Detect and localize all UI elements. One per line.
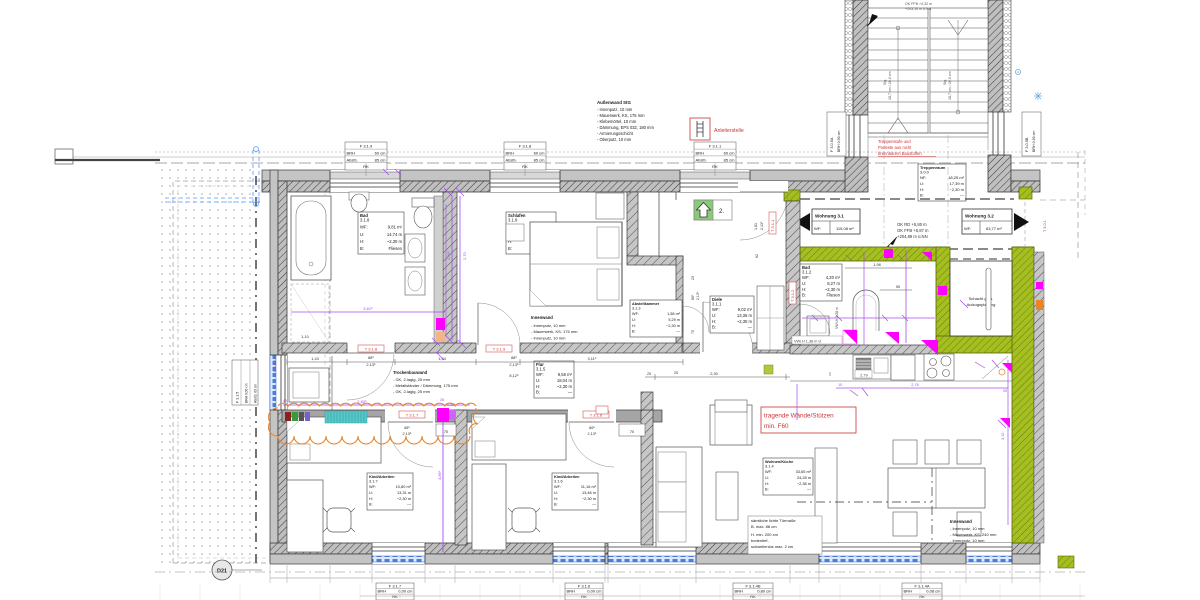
svg-text:4,20 m²: 4,20 m²: [826, 275, 841, 280]
svg-text:schwellenlos max. 2 cm: schwellenlos max. 2 cm: [751, 544, 794, 549]
svg-text:2,79: 2,79: [860, 374, 867, 378]
svg-text:~2,30 m: ~2,30 m: [825, 287, 841, 292]
svg-text:BRH 0,00 cm: BRH 0,00 cm: [245, 383, 249, 403]
svg-text:BRH: BRH: [347, 151, 356, 156]
svg-text:3.0.0: 3.0.0: [920, 169, 930, 174]
svg-text:WF:: WF:: [369, 484, 376, 489]
svg-text:BRH: BRH: [696, 151, 705, 156]
svg-text:2,13⁵: 2,13⁵: [403, 432, 412, 436]
svg-text:T 3.0.1: T 3.0.1: [1043, 220, 1047, 232]
svg-text:25: 25: [647, 372, 651, 376]
svg-text:60 cm: 60 cm: [724, 151, 736, 156]
svg-text:H:: H:: [536, 384, 540, 389]
svg-text:H:: H:: [369, 496, 373, 501]
svg-text:B:: B:: [920, 193, 924, 198]
svg-text:T 3.1.2: T 3.1.2: [790, 289, 795, 302]
svg-text:18,25 m²: 18,25 m²: [948, 175, 964, 180]
svg-text:23: 23: [691, 276, 695, 280]
svg-text:Innenwand: Innenwand: [950, 519, 972, 524]
svg-text:63,77 m²: 63,77 m²: [986, 226, 1002, 231]
svg-text:U:: U:: [632, 318, 636, 322]
svg-text:9,02 m²: 9,02 m²: [738, 307, 753, 312]
svg-text:25: 25: [674, 371, 678, 375]
svg-text:Podeste aus nicht: Podeste aus nicht: [878, 145, 912, 150]
svg-text:Abstellkammer: Abstellkammer: [632, 302, 660, 306]
svg-text:B:: B:: [360, 246, 364, 251]
svg-text:2,13⁵: 2,13⁵: [509, 362, 519, 367]
svg-text:min. F60: min. F60: [764, 423, 789, 430]
svg-text:WF:: WF:: [814, 226, 821, 231]
svg-text:8,12⁵: 8,12⁵: [509, 373, 519, 378]
svg-text:Abstb. 85 cm: Abstb. 85 cm: [254, 384, 258, 403]
svg-text:brennbarem Baustoffen: brennbarem Baustoffen: [878, 151, 922, 156]
svg-text:33,65 m²: 33,65 m²: [796, 469, 812, 474]
svg-text:BRH 0,93 cm: BRH 0,93 cm: [837, 131, 841, 152]
svg-text:8,27 m: 8,27 m: [827, 281, 840, 286]
svg-text:95: 95: [1003, 389, 1007, 393]
svg-text:3.1.3: 3.1.3: [632, 306, 640, 310]
svg-text:- Oberputz, 10 mm: - Oberputz, 10 mm: [597, 137, 632, 142]
svg-text:T 3.1.8: T 3.1.8: [365, 347, 378, 352]
svg-text:OK RD +5,80 m: OK RD +5,80 m: [897, 222, 927, 227]
svg-text:NF:: NF:: [920, 175, 926, 180]
svg-text:Abstb.: Abstb.: [347, 157, 358, 162]
svg-text:2,13⁵: 2,13⁵: [366, 362, 376, 367]
svg-text:H:: H:: [360, 239, 364, 244]
svg-text:4,86⁵: 4,86⁵: [437, 470, 442, 480]
svg-text:60 cm: 60 cm: [375, 151, 387, 156]
svg-text:0,08 cm: 0,08 cm: [926, 589, 941, 594]
svg-text:BRH: BRH: [378, 589, 387, 594]
svg-text:WF:: WF:: [554, 484, 561, 489]
svg-text:T 3.1.7: T 3.1.7: [406, 413, 419, 418]
svg-text:3.1.7: 3.1.7: [369, 478, 378, 483]
svg-text:WF:: WF:: [536, 372, 544, 377]
svg-text:B:: B:: [802, 293, 806, 298]
svg-text:- Innenputz, 10 mm: - Innenputz, 10 mm: [950, 538, 985, 543]
svg-text:F 3.0.5A: F 3.0.5A: [830, 137, 834, 152]
svg-text:86⁵: 86⁵: [589, 426, 595, 430]
svg-text:3.1.4: 3.1.4: [765, 463, 774, 468]
svg-text:68⁵: 68⁵: [404, 426, 410, 430]
svg-text:62: 62: [755, 254, 759, 258]
svg-text:3.1.8: 3.1.8: [360, 217, 370, 222]
svg-text:- Mauerwerk, KS, 175 mm: - Mauerwerk, KS, 175 mm: [597, 113, 645, 118]
svg-text:BRH: BRH: [506, 151, 515, 156]
svg-text:BRH: BRH: [904, 589, 913, 594]
svg-text:Innenwand: Innenwand: [531, 315, 553, 320]
svg-text:B:: B:: [554, 502, 558, 507]
svg-text:Außenwand StG: Außenwand StG: [597, 100, 631, 105]
svg-text:WF:: WF:: [712, 307, 720, 312]
svg-text:- Innenputz, 10 mm: - Innenputz, 10 mm: [531, 335, 566, 340]
svg-text:WF:: WF:: [765, 469, 772, 474]
svg-text:- Dämmung, EPS 032, 180 mm: - Dämmung, EPS 032, 180 mm: [597, 125, 654, 130]
svg-text:2,76: 2,76: [911, 383, 918, 387]
svg-text:+204,89 m ü.NN: +204,89 m ü.NN: [897, 234, 928, 239]
svg-text:- Armierungsschicht: - Armierungsschicht: [597, 131, 634, 136]
svg-text:sämtliche lichte Türmaße: sämtliche lichte Türmaße: [751, 518, 796, 523]
svg-text:U:: U:: [536, 378, 540, 383]
svg-text:H:: H:: [765, 481, 769, 486]
svg-text:3,11⁵: 3,11⁵: [588, 356, 597, 361]
svg-text:F 3.1.4B: F 3.1.4B: [745, 583, 760, 588]
svg-text:55: 55: [896, 285, 900, 289]
svg-text:~2,30 m: ~2,30 m: [949, 187, 964, 192]
svg-text:- GK, 2-lagig, 25 mm: - GK, 2-lagig, 25 mm: [393, 377, 431, 382]
svg-text:B:: B:: [369, 502, 373, 507]
svg-text:Trockenbauwand: Trockenbauwand: [393, 370, 428, 375]
svg-text:0,80 cm: 0,80 cm: [757, 589, 772, 594]
svg-text:3.1.6: 3.1.6: [554, 478, 563, 483]
svg-text:28: 28: [440, 398, 444, 402]
svg-text:18,04 m: 18,04 m: [557, 378, 573, 383]
svg-text:13,46 m: 13,46 m: [582, 490, 596, 495]
svg-text:BRH: BRH: [567, 589, 576, 594]
svg-text:15: 15: [838, 383, 842, 387]
svg-text:H:: H:: [632, 324, 636, 328]
svg-text:U:: U:: [369, 490, 373, 495]
svg-text:B:: B:: [765, 487, 769, 492]
svg-text:13,31 m: 13,31 m: [397, 490, 411, 495]
svg-text:~2,30 m: ~2,30 m: [582, 496, 596, 501]
svg-text:0,00 cm: 0,00 cm: [398, 589, 413, 594]
svg-text:~2,30 m: ~2,30 m: [666, 324, 680, 328]
svg-text:U:: U:: [360, 232, 364, 237]
svg-text:3.1.5: 3.1.5: [536, 366, 546, 371]
svg-text:70: 70: [630, 430, 634, 434]
svg-text:WF:: WF:: [802, 275, 810, 280]
svg-text:—: —: [676, 330, 680, 334]
svg-text:F 3.1.4A: F 3.1.4A: [914, 583, 929, 588]
svg-text:2,13⁵: 2,13⁵: [588, 432, 597, 436]
svg-text:OK FFB +5,87 m: OK FFB +5,87 m: [897, 228, 929, 233]
svg-text:B:: B:: [712, 325, 716, 330]
svg-text:H:: H:: [554, 496, 558, 501]
svg-text:H:: H:: [802, 287, 806, 292]
svg-text:Abstb.: Abstb.: [506, 157, 517, 162]
svg-text:- Innenputz, 10 mm: - Innenputz, 10 mm: [950, 526, 985, 531]
svg-text:3.1.9: 3.1.9: [508, 217, 518, 222]
svg-text:14,74 m: 14,74 m: [387, 232, 403, 237]
svg-text:1,10: 1,10: [301, 334, 309, 339]
svg-text:RK: RK: [392, 594, 398, 599]
svg-text:~2,30 m: ~2,30 m: [737, 319, 753, 324]
svg-text:2,46⁵: 2,46⁵: [446, 250, 451, 260]
svg-text:T 3.1.9: T 3.1.9: [493, 347, 506, 352]
svg-text:9,81 m²: 9,81 m²: [388, 225, 403, 230]
svg-text:3,61⁵: 3,61⁵: [363, 306, 373, 311]
svg-text:WF:: WF:: [964, 226, 971, 231]
svg-text:Wohnung 3.1: Wohnung 3.1: [815, 214, 844, 219]
svg-text:2.: 2.: [719, 209, 724, 215]
svg-text:- Mauerwerk, KS, 240 mm: - Mauerwerk, KS, 240 mm: [950, 532, 997, 537]
svg-text:U:: U:: [554, 490, 558, 495]
svg-text:F 3.0.5B: F 3.0.5B: [1025, 137, 1029, 152]
svg-text:OK FFB +4,32 m: OK FFB +4,32 m: [905, 2, 932, 6]
svg-text:U:: U:: [712, 313, 716, 318]
svg-text:B:: B:: [508, 246, 512, 251]
svg-text:H. min. 200 cm: H. min. 200 cm: [751, 532, 779, 537]
svg-text:75: 75: [691, 330, 695, 334]
svg-text:+203,10 m ü.NN: +203,10 m ü.NN: [905, 7, 932, 11]
svg-text:- Innenputz, 10 mm: - Innenputz, 10 mm: [597, 107, 633, 112]
svg-text:Fliesen: Fliesen: [827, 293, 841, 298]
svg-text:17,39 m: 17,39 m: [950, 181, 965, 186]
svg-text:60 cm: 60 cm: [534, 151, 546, 156]
svg-text:2,30: 2,30: [710, 371, 718, 376]
svg-text:10,80 m²: 10,80 m²: [396, 484, 412, 489]
svg-text:Treppenstufe und: Treppenstufe und: [878, 139, 911, 144]
svg-text:F 3.1.8: F 3.1.8: [519, 144, 532, 149]
svg-text:18,7 cm / 26,0 cm: 18,7 cm / 26,0 cm: [948, 71, 952, 100]
svg-text:bodentief,: bodentief,: [751, 538, 769, 543]
svg-text:11,16 m²: 11,16 m²: [581, 484, 597, 489]
svg-text:1,58 m²: 1,58 m²: [667, 312, 681, 316]
svg-text:Wohnung 3.2: Wohnung 3.2: [965, 214, 994, 219]
svg-text:H:: H:: [712, 319, 716, 324]
svg-text:- Innenputz, 10 mm: - Innenputz, 10 mm: [531, 323, 566, 328]
svg-text:~2,30 m: ~2,30 m: [397, 496, 411, 501]
svg-text:Abstb.: Abstb.: [696, 157, 707, 162]
svg-text:Anleiterstelle: Anleiterstelle: [714, 128, 744, 134]
svg-text:~2,30 m: ~2,30 m: [387, 239, 403, 244]
svg-text:70: 70: [444, 430, 448, 434]
svg-text:T 3.1.1: T 3.1.1: [770, 219, 775, 232]
svg-text:86⁵: 86⁵: [691, 294, 695, 300]
svg-text:tragende Wände/Stützen: tragende Wände/Stützen: [764, 413, 834, 420]
svg-text:F 3.1.5: F 3.1.5: [236, 392, 240, 403]
svg-text:85 cm: 85 cm: [534, 157, 546, 162]
svg-text:U:: U:: [765, 475, 769, 480]
svg-text:- Metallständer / Dämmung, 175: - Metallständer / Dämmung, 175 mm: [393, 383, 459, 388]
svg-text:H:: H:: [920, 187, 924, 192]
svg-text:1,43: 1,43: [311, 356, 319, 361]
svg-text:D21: D21: [217, 569, 227, 575]
svg-text:WF:: WF:: [632, 312, 639, 316]
svg-text:F 3.1.5: F 3.1.5: [272, 359, 277, 372]
svg-text:~2,30 m: ~2,30 m: [557, 384, 573, 389]
svg-text:1,98: 1,98: [873, 263, 880, 267]
svg-text:- Mauerwerk, KS, 175 mm: - Mauerwerk, KS, 175 mm: [531, 329, 578, 334]
svg-text:- GK, 2-lagig, 25 mm: - GK, 2-lagig, 25 mm: [393, 389, 431, 394]
svg-text:U:: U:: [802, 281, 806, 286]
svg-text:BRH 0,93 cm: BRH 0,93 cm: [1032, 131, 1036, 152]
svg-text:13,36 m: 13,36 m: [737, 313, 753, 318]
svg-text:85 cm: 85 cm: [724, 157, 736, 162]
svg-text:RK: RK: [581, 594, 587, 599]
svg-text:2,13⁵: 2,13⁵: [696, 291, 700, 300]
svg-text:3,10: 3,10: [1001, 433, 1005, 440]
svg-text:Stg.: Stg.: [943, 79, 947, 85]
svg-text:88⁵: 88⁵: [511, 355, 517, 360]
svg-text:—: —: [960, 193, 964, 198]
svg-text:BRH: BRH: [735, 589, 744, 594]
svg-text:45: 45: [283, 399, 287, 403]
svg-text:F 3.1.9: F 3.1.9: [360, 144, 373, 149]
svg-text:~2,38 m: ~2,38 m: [797, 481, 811, 486]
svg-text:- Klebemörtel, 10 mm: - Klebemörtel, 10 mm: [597, 119, 637, 124]
svg-text:—: —: [592, 502, 596, 507]
svg-text:3.1.2: 3.1.2: [802, 269, 812, 274]
svg-text:B. max. 88 cm: B. max. 88 cm: [751, 524, 777, 529]
svg-text:F 3.1.1: F 3.1.1: [709, 144, 722, 149]
svg-text:3.1.1: 3.1.1: [712, 301, 722, 306]
svg-text:U:: U:: [920, 181, 924, 186]
svg-text:Fliesen: Fliesen: [389, 246, 403, 251]
svg-text:B:: B:: [536, 390, 540, 395]
svg-text:Stg.: Stg.: [883, 79, 887, 85]
svg-text:88⁵: 88⁵: [368, 355, 374, 360]
svg-text:F 3.1.6: F 3.1.6: [578, 583, 591, 588]
svg-text:WF:: WF:: [360, 225, 368, 230]
svg-text:9,56 m²: 9,56 m²: [558, 372, 573, 377]
svg-text:2,70: 2,70: [462, 251, 467, 260]
svg-text:—: —: [807, 487, 811, 492]
svg-text:5,29 m: 5,29 m: [668, 318, 680, 322]
svg-text:18,7 cm / 26,0 cm: 18,7 cm / 26,0 cm: [888, 71, 892, 100]
svg-text:VWi.H 1,38 m Ü: VWi.H 1,38 m Ü: [794, 340, 821, 344]
svg-text:RK: RK: [750, 594, 756, 599]
svg-text:1,81: 1,81: [754, 223, 758, 230]
svg-text:85 cm: 85 cm: [375, 157, 387, 162]
svg-text:115,08 m²: 115,08 m²: [836, 226, 854, 231]
svg-text:B:: B:: [632, 330, 636, 334]
svg-text:24,28 m: 24,28 m: [797, 475, 811, 480]
svg-text:2,13⁵: 2,13⁵: [760, 221, 764, 230]
svg-text:—: —: [407, 502, 411, 507]
